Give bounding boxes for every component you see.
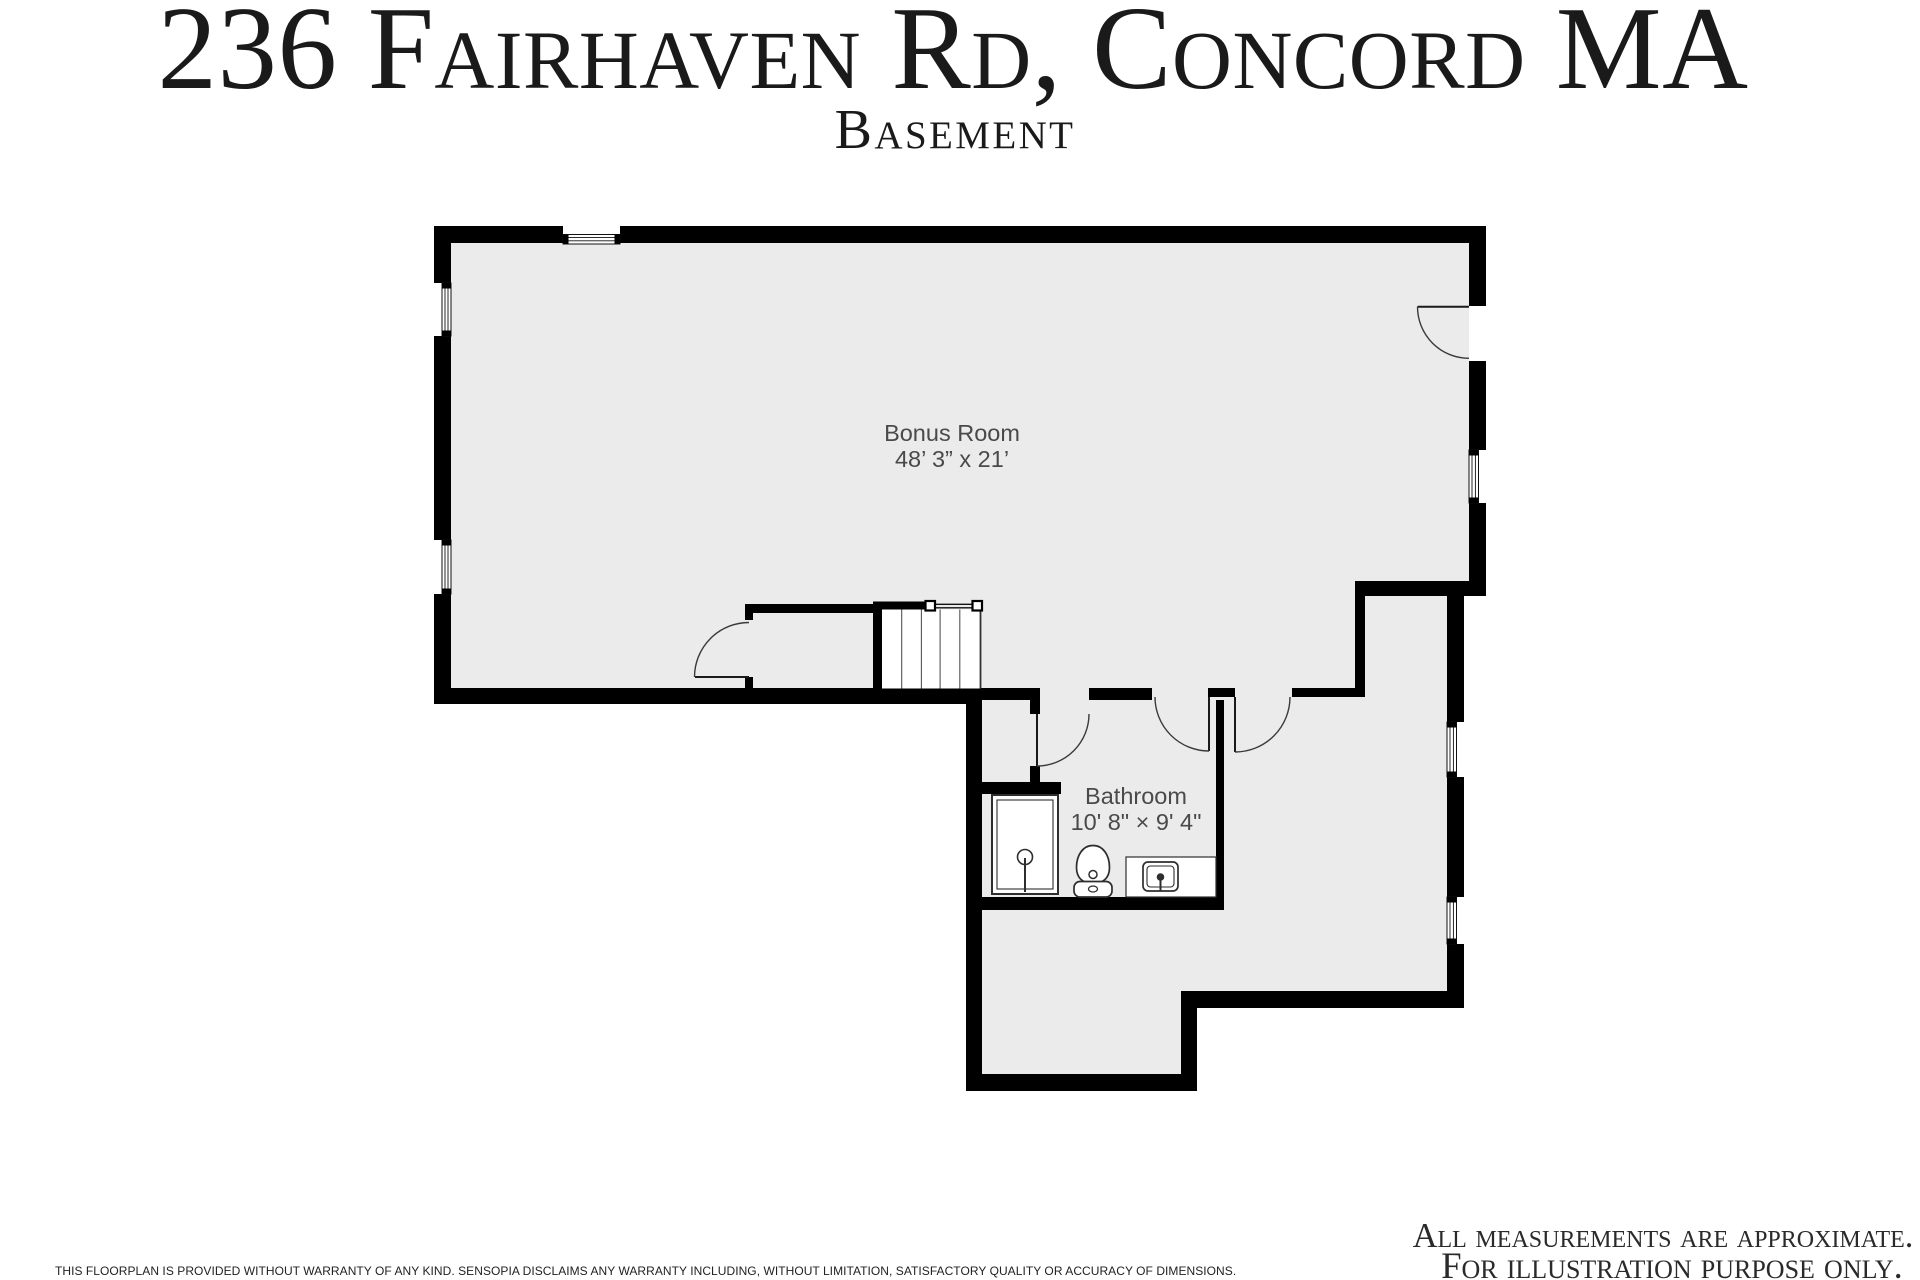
svg-text:THIS FLOORPLAN IS PROVIDED WIT: THIS FLOORPLAN IS PROVIDED WITHOUT WARRA… xyxy=(55,1264,1236,1278)
svg-text:Bonus Room: Bonus Room xyxy=(884,420,1020,446)
svg-text:10' 8" × 9' 4": 10' 8" × 9' 4" xyxy=(1071,809,1202,835)
svg-text:Basement: Basement xyxy=(835,99,1076,161)
svg-text:For illustration purpose only.: For illustration purpose only. xyxy=(1441,1245,1903,1280)
svg-text:236 Fairhaven Rd, Concord MA: 236 Fairhaven Rd, Concord MA xyxy=(157,0,1748,114)
svg-text:48’ 3” x 21’: 48’ 3” x 21’ xyxy=(895,446,1009,472)
svg-text:Bathroom: Bathroom xyxy=(1085,783,1187,809)
